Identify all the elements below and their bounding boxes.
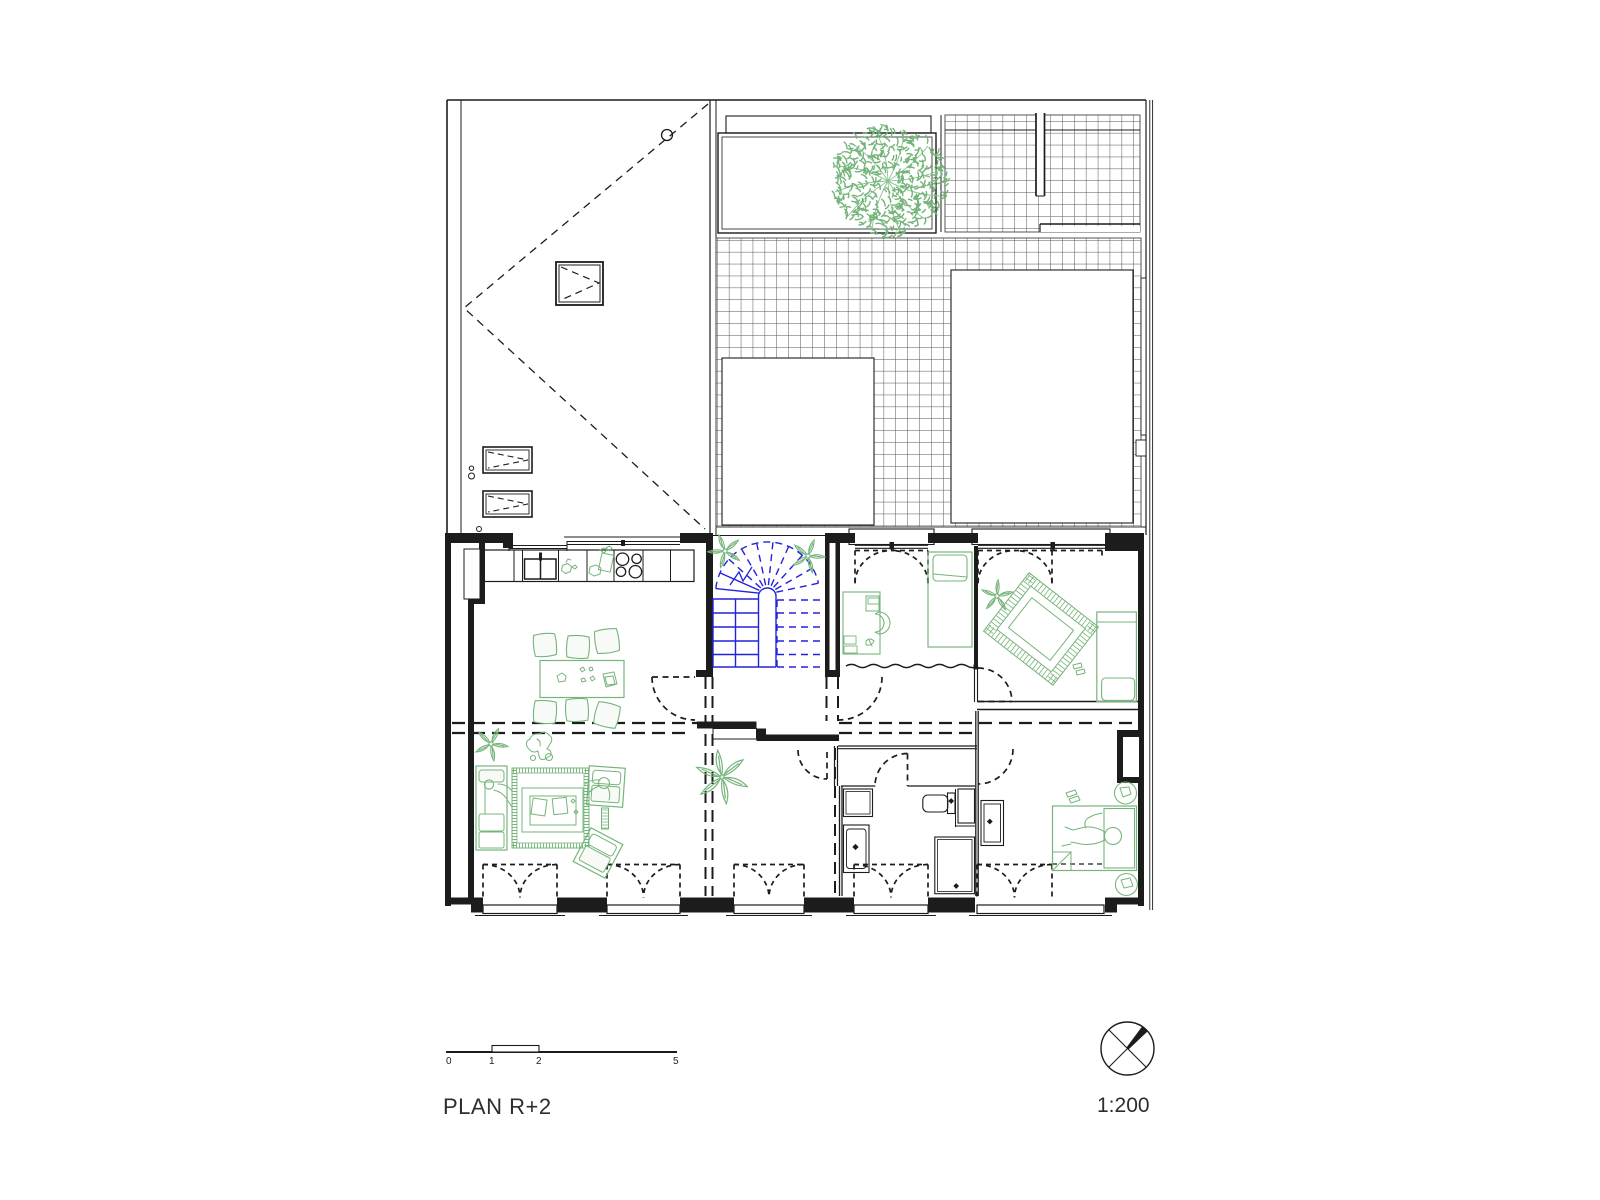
svg-text:0: 0 — [446, 1056, 452, 1067]
svg-text:1:200: 1:200 — [1097, 1094, 1150, 1117]
svg-text:5: 5 — [673, 1056, 679, 1067]
svg-text:1: 1 — [489, 1056, 495, 1067]
svg-text:PLAN R+2: PLAN R+2 — [443, 1094, 552, 1119]
svg-text:2: 2 — [536, 1056, 542, 1067]
